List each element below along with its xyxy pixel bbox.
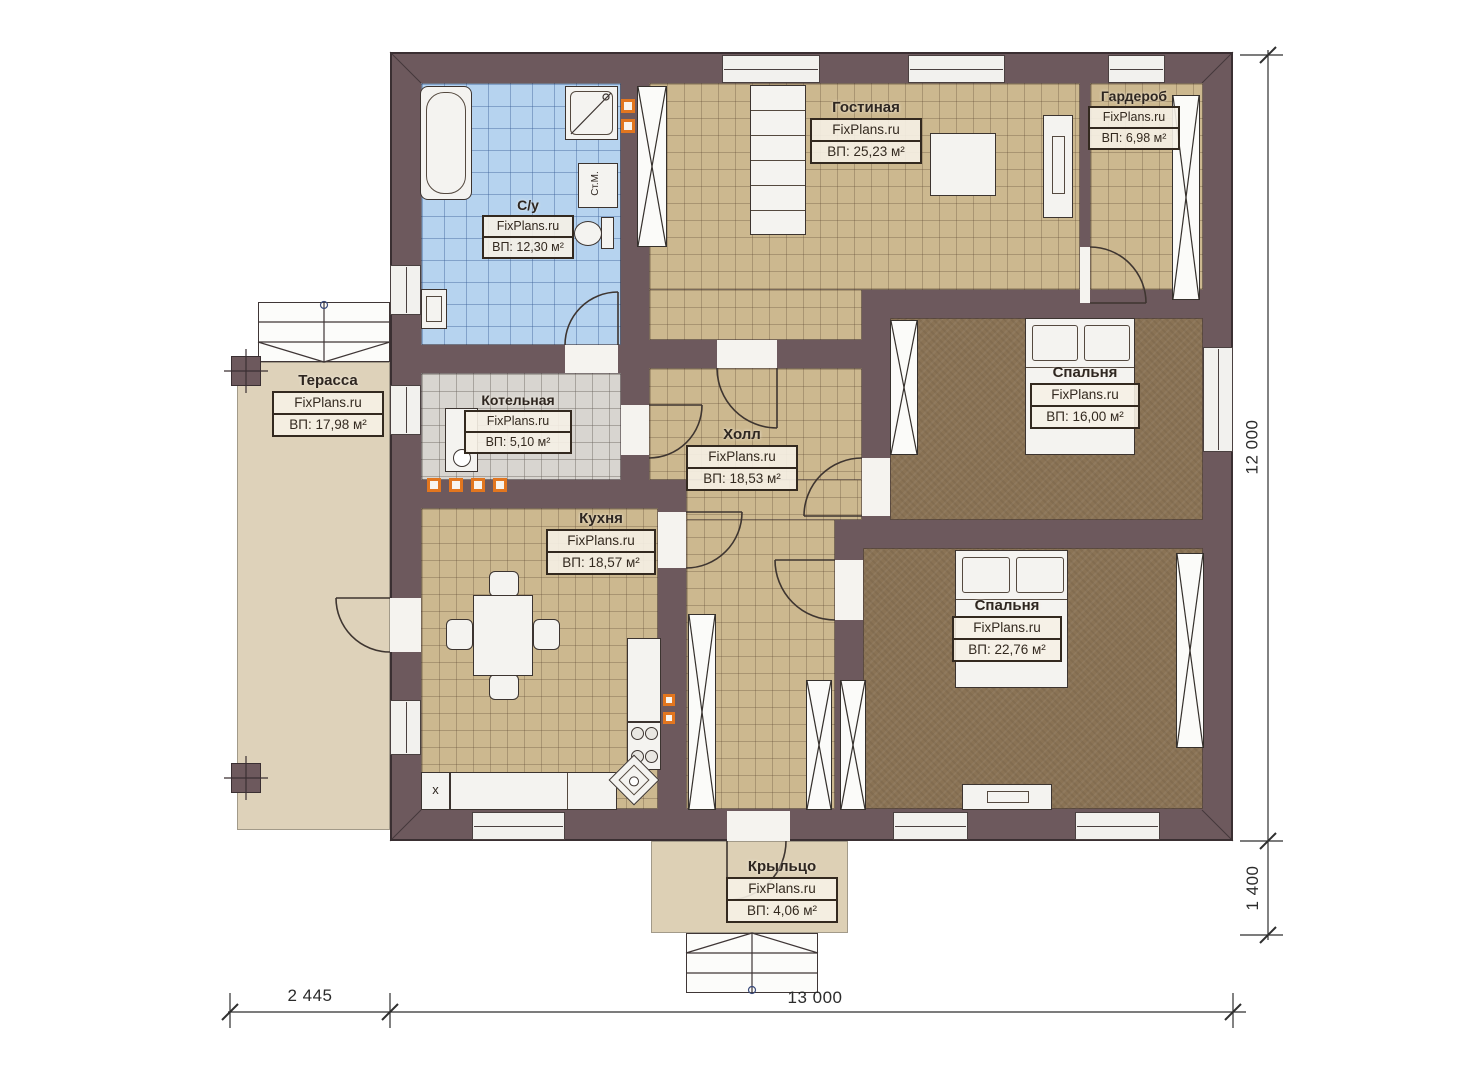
- room-label-hall: Холл FixPlans.ru ВП: 18,53 м²: [686, 426, 798, 491]
- area-box: ВП: 4,06 м²: [726, 901, 838, 923]
- brand-box: FixPlans.ru: [1088, 106, 1180, 129]
- porch-steps: [686, 933, 818, 993]
- built-in-wardrobe: [688, 614, 716, 810]
- terrace-steps: [258, 302, 390, 362]
- area-box: ВП: 16,00 м²: [1030, 407, 1140, 429]
- dimension-label-house-depth: 12 000: [1243, 395, 1263, 500]
- room-label-wardrobe: Гардероб FixPlans.ru ВП: 6,98 м²: [1088, 88, 1180, 150]
- area-box: ВП: 17,98 м²: [272, 415, 384, 437]
- bathtub: [420, 86, 472, 200]
- window: [390, 265, 421, 315]
- chair: [533, 619, 560, 650]
- dimension-label-porch-depth: 1 400: [1243, 848, 1263, 928]
- brand-box: FixPlans.ru: [272, 391, 384, 415]
- door-opening-bedroom-2: [835, 560, 863, 620]
- window: [390, 385, 421, 435]
- heating-marker: [427, 478, 441, 492]
- room-label-kitchen: Кухня FixPlans.ru ВП: 18,57 м²: [546, 510, 656, 575]
- room-living-passage: [649, 290, 862, 340]
- door-opening-wardrobe: [1080, 247, 1090, 303]
- room-label-bedroom-1: Спальня FixPlans.ru ВП: 16,00 м²: [1030, 364, 1140, 429]
- area-box: ВП: 18,53 м²: [686, 469, 798, 491]
- door-opening-bathroom: [565, 345, 618, 373]
- room-label-boiler: Котельная FixPlans.ru ВП: 5,10 м²: [464, 392, 572, 454]
- window: [1075, 812, 1160, 840]
- heating-marker: [449, 478, 463, 492]
- door-opening-living: [717, 340, 777, 368]
- window: [1108, 55, 1165, 83]
- door-opening-entrance: [727, 811, 790, 841]
- pillow: [1032, 325, 1078, 361]
- kitchen-counter: [450, 772, 617, 810]
- ventilation-shaft: [637, 86, 667, 247]
- brand-box: FixPlans.ru: [464, 410, 572, 433]
- brand-box: FixPlans.ru: [952, 616, 1062, 640]
- terrace-column: [231, 356, 261, 386]
- kitchen-unit-mark: x: [421, 782, 450, 797]
- brand-box: FixPlans.ru: [686, 445, 798, 469]
- brand-box: FixPlans.ru: [726, 877, 838, 901]
- window: [908, 55, 1005, 83]
- area-box: ВП: 5,10 м²: [464, 433, 572, 454]
- area-box: ВП: 18,57 м²: [546, 553, 656, 575]
- dimension-label-house-width: 13 000: [755, 988, 875, 1008]
- room-label-living: Гостиная FixPlans.ru ВП: 25,23 м²: [810, 99, 922, 164]
- shower: [565, 86, 618, 140]
- built-in-wardrobe: [1176, 553, 1204, 748]
- chair: [489, 571, 519, 597]
- brand-box: FixPlans.ru: [482, 215, 574, 238]
- brand-box: FixPlans.ru: [1030, 383, 1140, 407]
- door-opening-kitchen: [658, 512, 686, 568]
- washing-machine-label: Ст.М.: [590, 171, 601, 196]
- built-in-wardrobe: [840, 680, 866, 810]
- area-box: ВП: 6,98 м²: [1088, 129, 1180, 150]
- heating-marker: [621, 119, 635, 133]
- shelving: [750, 85, 806, 235]
- pillow: [1016, 557, 1064, 593]
- built-in-wardrobe: [890, 320, 918, 455]
- pillow: [962, 557, 1010, 593]
- area-box: ВП: 22,76 м²: [952, 640, 1062, 662]
- window: [1203, 347, 1233, 452]
- brand-box: FixPlans.ru: [546, 529, 656, 553]
- window: [722, 55, 820, 83]
- room-label-bedroom-2: Спальня FixPlans.ru ВП: 22,76 м²: [952, 597, 1062, 662]
- area-box: ВП: 12,30 м²: [482, 238, 574, 259]
- window: [893, 812, 968, 840]
- dresser: [962, 784, 1052, 810]
- dining-table: [473, 595, 533, 676]
- pillow: [1084, 325, 1130, 361]
- heating-marker: [471, 478, 485, 492]
- door-opening-bedroom-1: [862, 458, 890, 516]
- bathroom-sink: [421, 289, 447, 329]
- tv-stand: [1043, 115, 1073, 218]
- window: [472, 812, 565, 840]
- terrace-column: [231, 763, 261, 793]
- toilet: [574, 221, 602, 246]
- door-opening-boiler: [621, 405, 649, 455]
- room-label-porch: Крыльцо FixPlans.ru ВП: 4,06 м²: [726, 858, 838, 923]
- built-in-wardrobe: [806, 680, 832, 810]
- heating-marker: [621, 99, 635, 113]
- dimension-label-terrace-width: 2 445: [255, 986, 365, 1006]
- room-label-terrace: Терасса FixPlans.ru ВП: 17,98 м²: [272, 372, 384, 437]
- chair: [446, 619, 473, 650]
- heating-marker: [663, 712, 675, 724]
- area-box: ВП: 25,23 м²: [810, 142, 922, 164]
- heating-marker: [493, 478, 507, 492]
- door-opening-terrace: [390, 598, 421, 652]
- brand-box: FixPlans.ru: [810, 118, 922, 142]
- coffee-table: [930, 133, 996, 196]
- heating-marker: [663, 694, 675, 706]
- window: [390, 700, 421, 755]
- kitchen-counter: [627, 638, 661, 722]
- chair: [489, 674, 519, 700]
- floor-plan: Ст.М. x: [0, 0, 1473, 1080]
- toilet-tank: [601, 217, 614, 249]
- room-label-bathroom: С/у FixPlans.ru ВП: 12,30 м²: [482, 197, 574, 259]
